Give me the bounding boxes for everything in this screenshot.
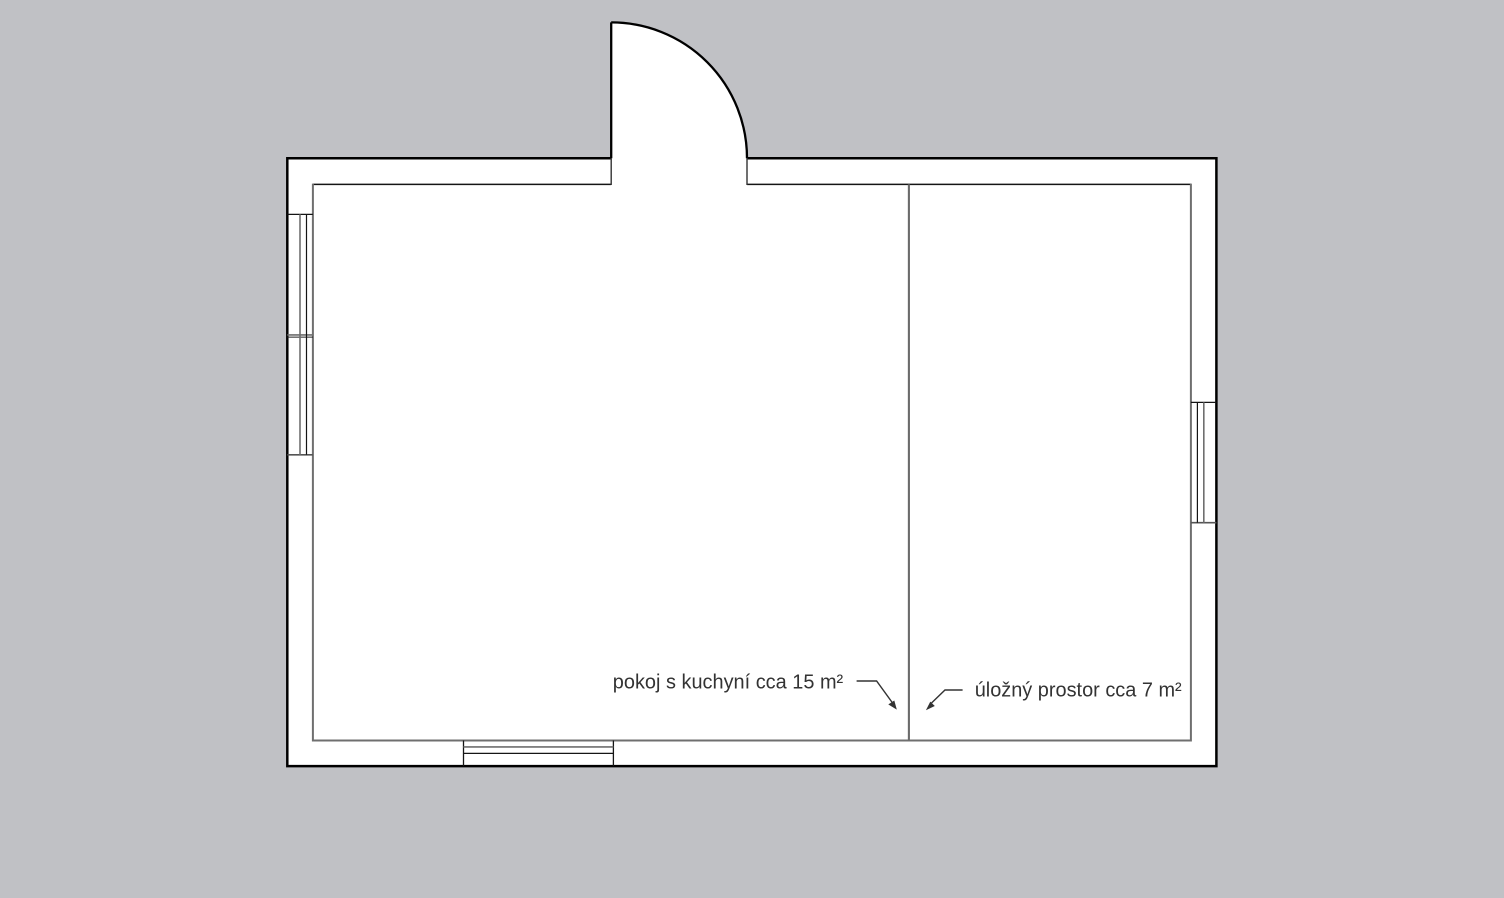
svg-text:pokoj s kuchyní cca 15 m²: pokoj s kuchyní cca 15 m² <box>613 671 844 694</box>
svg-text:úložný prostor cca 7 m²: úložný prostor cca 7 m² <box>975 678 1182 701</box>
